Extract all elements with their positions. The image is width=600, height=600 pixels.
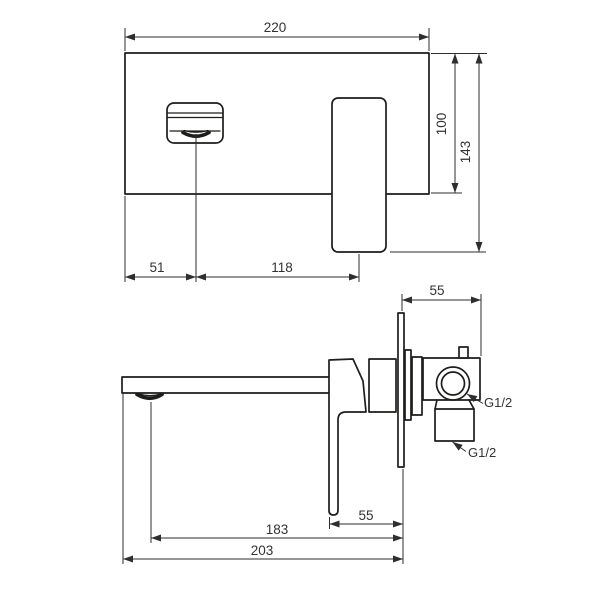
dim-total-reach-label: 203	[251, 543, 274, 558]
front-view: 220 100 143 51 118	[125, 20, 487, 282]
side-flange-washer	[405, 350, 411, 420]
dim-total-height-label: 143	[458, 141, 473, 164]
side-cartridge-housing	[369, 359, 396, 412]
side-body-and-lever-outline	[329, 359, 366, 515]
side-spout-outline	[122, 377, 329, 393]
dim-valve-depth: 55	[402, 283, 481, 356]
front-spout	[167, 103, 223, 143]
dim-spout-offset: 51	[125, 196, 359, 282]
dim-lever-to-wall-label: 55	[358, 508, 373, 523]
dim-spout-reach-label: 183	[266, 522, 289, 537]
thread-top-label: G1/2	[484, 395, 512, 410]
side-view: G1/2 G1/2 55 55 183	[122, 283, 512, 564]
dim-spout-to-handle: 118	[196, 260, 359, 277]
side-wall-plate	[398, 313, 404, 467]
dim-lever-to-wall: 55	[330, 508, 404, 529]
side-inlet-port-inner-circle	[442, 372, 465, 395]
side-valve-top-tab	[459, 347, 468, 358]
dim-front-width: 220	[125, 20, 429, 51]
dim-spout-to-handle-label: 118	[271, 260, 293, 275]
side-bottom-inlet	[435, 409, 474, 441]
dim-plate-height-label: 100	[434, 113, 449, 136]
technical-drawing-canvas: 220 100 143 51 118	[0, 0, 600, 600]
thread-callout-bottom: G1/2	[453, 442, 497, 460]
thread-bottom-label: G1/2	[468, 445, 496, 460]
dim-front-width-label: 220	[264, 20, 287, 35]
side-inlet-chamfer-right	[469, 400, 474, 409]
front-handle-outline	[332, 98, 386, 252]
side-inlet-chamfer-left	[435, 400, 437, 409]
faucet-dimension-drawing: 220 100 143 51 118	[0, 0, 600, 600]
side-spacer-nut	[412, 357, 422, 415]
dim-spout-offset-label: 51	[149, 260, 164, 275]
dim-valve-depth-label: 55	[429, 283, 444, 298]
